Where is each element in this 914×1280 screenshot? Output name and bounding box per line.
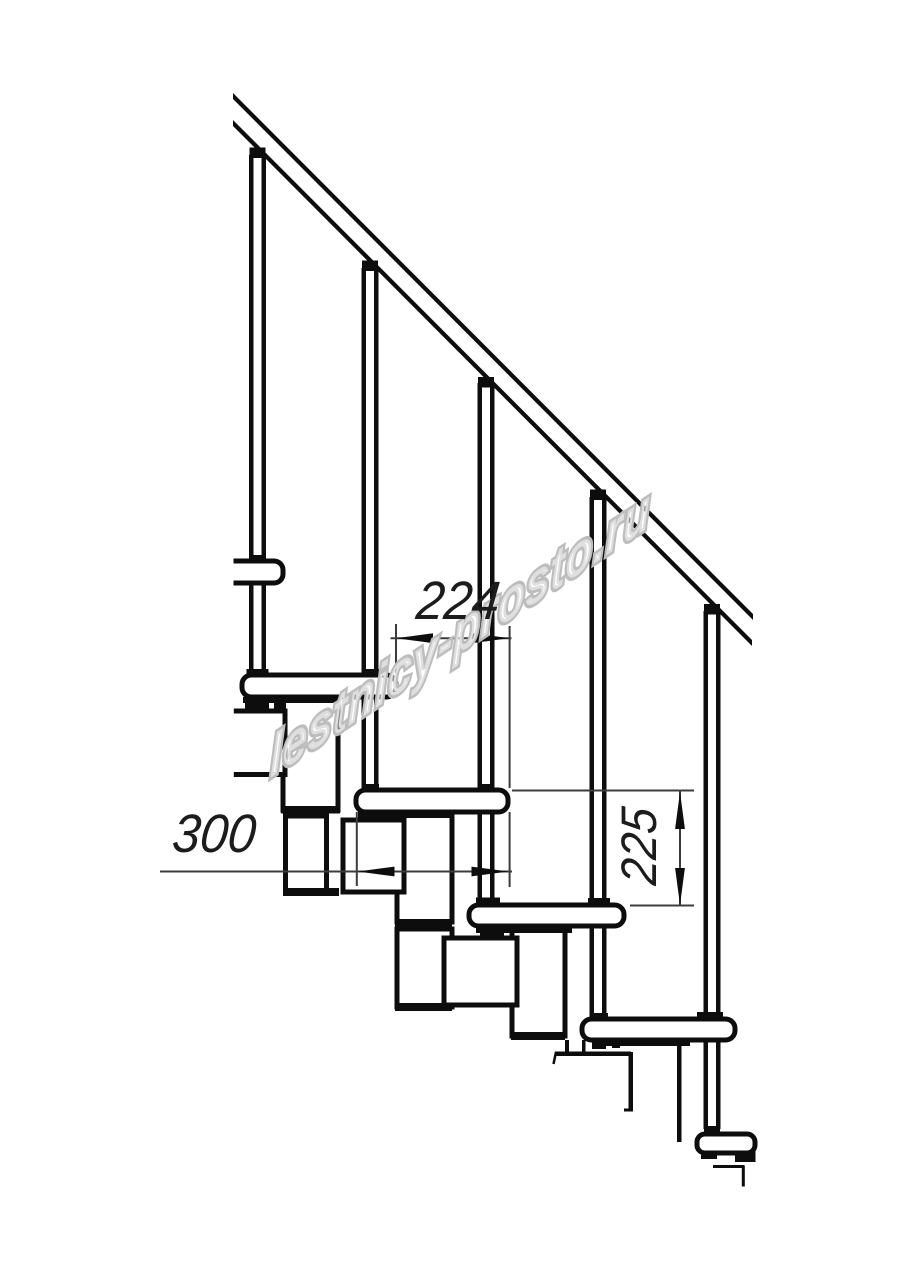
svg-text:300: 300 — [170, 804, 259, 864]
svg-text:225: 225 — [611, 804, 667, 888]
svg-text:224: 224 — [413, 571, 503, 631]
